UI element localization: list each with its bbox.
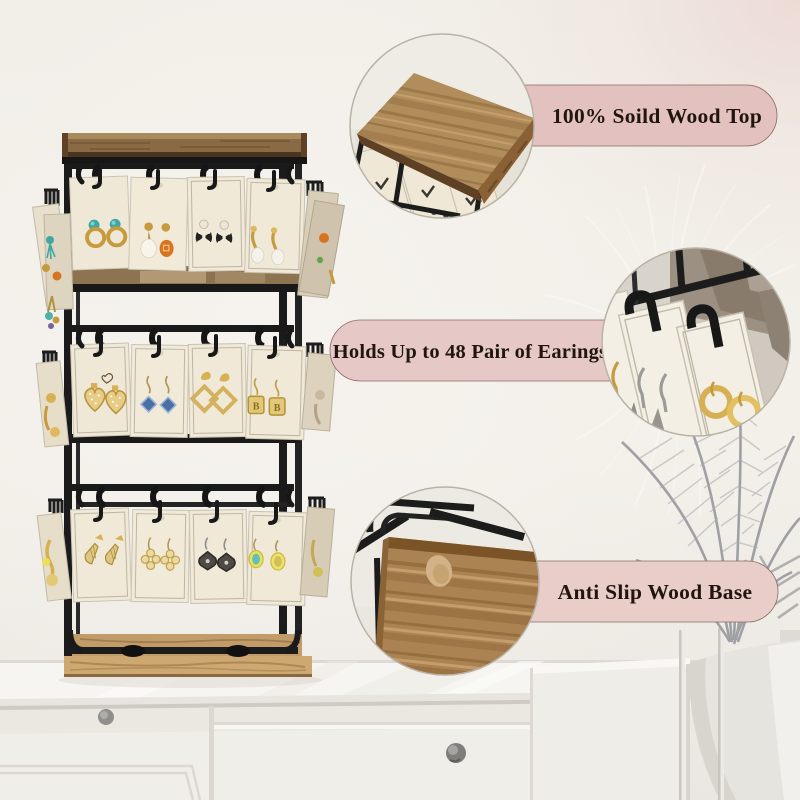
- svg-text:Holds Up to 48 Pair of Earing: Holds Up to 48 Pair of Earings: [333, 341, 607, 363]
- svg-text:100% Soild Wood Top: 100% Soild Wood Top: [552, 104, 762, 128]
- svg-text:B: B: [274, 403, 281, 414]
- svg-text:Anti Slip Wood Base: Anti Slip Wood Base: [558, 580, 753, 604]
- svg-text:B: B: [253, 402, 260, 413]
